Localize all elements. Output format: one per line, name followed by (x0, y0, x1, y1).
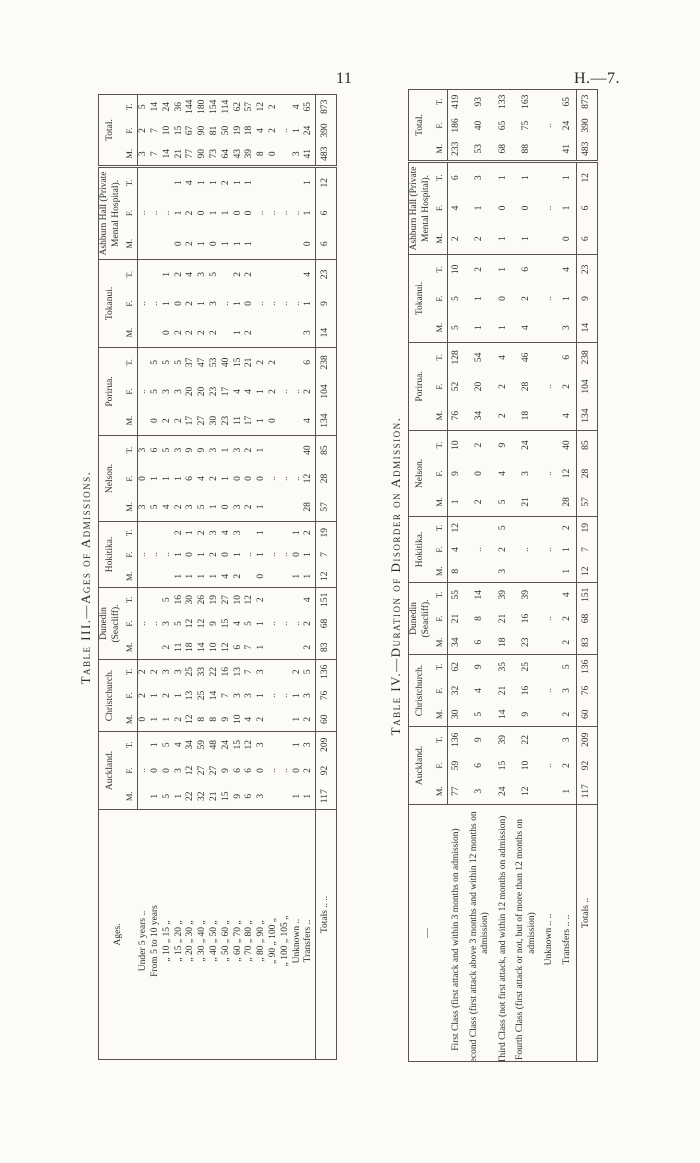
table-cell: 0 (221, 493, 233, 522)
table-cell: 2 (173, 318, 185, 347)
table-cell: 1 (303, 543, 315, 565)
table-cell: 65 (559, 89, 577, 113)
table-cell: 1 (173, 464, 185, 493)
table-cell: .. (541, 607, 559, 631)
table-cell (138, 166, 150, 197)
table-cell (280, 406, 292, 435)
table-cell: 3 (466, 779, 495, 805)
table-cell: 1 (303, 289, 315, 318)
table-cell: 1 (256, 406, 268, 435)
table-cell (541, 488, 559, 517)
table-cell: 2 (173, 493, 185, 522)
table-cell: 2 (150, 660, 162, 684)
table-cell: 2 (197, 318, 209, 347)
table-cell: 5 (495, 488, 513, 517)
table-cell (268, 318, 280, 347)
table-cell: 1 (291, 684, 303, 708)
table-row: Transfers .. ..1232352241122812404263140… (559, 89, 577, 1061)
table-cell (268, 660, 280, 684)
sub-header-mft: M. (122, 565, 138, 587)
table-cell: 16 (221, 660, 233, 684)
table-cell: 180 (197, 94, 209, 118)
row-label: Transfers .. (303, 810, 315, 1060)
row-label: Unknown .. (291, 810, 303, 1060)
table-cell: 1 (221, 228, 233, 259)
table-cell: 30 (209, 406, 221, 435)
row-label: Unknown .. .. (541, 805, 559, 1062)
table-cell: 24 (162, 94, 174, 118)
table-cell: 92 (577, 753, 598, 779)
table-cell: 4 (197, 464, 209, 493)
table-cell: 93 (466, 89, 495, 113)
table-cell: 2 (209, 464, 221, 493)
table-cell: 28 (577, 459, 598, 488)
table-cell: 0 (256, 565, 268, 587)
table-cell: 1 (162, 259, 174, 288)
table-cell: 0 (303, 228, 315, 259)
table-cell: 9 (466, 655, 495, 679)
table-cell (291, 347, 303, 376)
table-cell: 4 (512, 313, 541, 342)
table-cell: 1 (162, 289, 174, 318)
table-cell: 117 (577, 779, 598, 805)
table-cell: 1 (495, 254, 513, 283)
table-row: Transfers ..1232352241122812404263140114… (303, 94, 315, 1059)
table-cell: 1 (209, 565, 221, 587)
table-cell (291, 166, 303, 197)
table-cell: 28 (315, 464, 336, 493)
table-row: „ 40 „ 50 „21274881422109191231233023532… (209, 94, 221, 1059)
table-cell: 136 (577, 655, 598, 679)
sub-header-mft: T. (122, 347, 138, 376)
table-cell: 6 (448, 161, 466, 192)
table-cell: 9 (315, 289, 336, 318)
table-cell: 8 (197, 708, 209, 732)
table-cell (256, 166, 268, 197)
table-cell: 5 (162, 587, 174, 611)
table-cell (244, 565, 256, 587)
table-cell: 0 (185, 543, 197, 565)
table-cell: 21 (495, 607, 513, 631)
table-cell: 3 (559, 727, 577, 753)
table-cell: 12 (197, 612, 209, 636)
table-cell: 23 (577, 254, 598, 283)
table-cell: 104 (315, 377, 336, 406)
table-cell: 4 (303, 406, 315, 435)
table-cell: 34 (448, 631, 466, 655)
table-cell: 1 (150, 464, 162, 493)
table-cell: 3 (256, 732, 268, 758)
table-cell: 4 (495, 342, 513, 371)
sub-header-mft: F. (432, 459, 448, 488)
table-cell: 4 (162, 493, 174, 522)
sub-header-mft: M. (122, 493, 138, 522)
table-cell: .. (256, 289, 268, 318)
sub-header-mft: F. (122, 464, 138, 493)
table-cell (280, 259, 292, 288)
table-row: From 5 to 10 years101112....516055....77… (150, 94, 162, 1059)
table-cell: 55 (448, 582, 466, 606)
table-cell: 3 (303, 318, 315, 347)
table-cell: 1 (303, 565, 315, 587)
table-cell: 14 (209, 684, 221, 708)
table-cell: 1 (291, 521, 303, 543)
table-cell: 6 (315, 197, 336, 228)
table-cell (150, 587, 162, 611)
table-cell: 12 (244, 732, 256, 758)
table-cell: 1 (466, 192, 495, 223)
table-cell (256, 259, 268, 288)
table-cell: 4 (559, 582, 577, 606)
table-cell: 39 (512, 582, 541, 606)
table-cell: 25 (512, 655, 541, 679)
table-cell (280, 708, 292, 732)
table-cell: 10 (232, 708, 244, 732)
table-cell: .. (244, 543, 256, 565)
table-cell (541, 655, 559, 679)
table-cell: 50 (221, 118, 233, 142)
table-cell: 2 (221, 166, 233, 197)
table-cell (268, 784, 280, 810)
sub-header-mft: M. (122, 406, 138, 435)
table-cell: 21 (495, 679, 513, 703)
table-cell: 1 (221, 464, 233, 493)
table-cell: 1 (303, 166, 315, 197)
table-cell: 1 (173, 684, 185, 708)
sub-header-mft: F. (122, 377, 138, 406)
table-cell: 3 (197, 259, 209, 288)
table-cell (541, 703, 559, 727)
table-cell: 3 (209, 289, 221, 318)
table-cell (162, 228, 174, 259)
table-cell: 41 (559, 137, 577, 161)
table-cell: 8 (209, 708, 221, 732)
table-cell: .. (280, 758, 292, 784)
table-cell: 60 (577, 703, 598, 727)
table-cell: 2 (138, 118, 150, 142)
table-cell: 25 (185, 660, 197, 684)
table-row: Unknown .. .................... (541, 89, 559, 1061)
table-cell: 7 (150, 142, 162, 166)
table-cell: .. (280, 684, 292, 708)
table-cell: 0 (291, 758, 303, 784)
table-cell: 4 (303, 587, 315, 611)
table-cell: 3 (244, 684, 256, 708)
table-cell: 1 (244, 228, 256, 259)
table-cell: 2 (197, 521, 209, 543)
table-cell: 483 (315, 142, 336, 166)
sub-header-mft: T. (432, 430, 448, 459)
table-cell: 1 (197, 565, 209, 587)
table-cell: 76 (315, 684, 336, 708)
table-cell: 1 (256, 612, 268, 636)
sub-header-mft: T. (122, 521, 138, 543)
table-cell: 17 (244, 406, 256, 435)
table-cell: 2 (173, 259, 185, 288)
table-cell: 2 (185, 318, 197, 347)
table-cell: 10 (448, 430, 466, 459)
table-cell: 3 (209, 435, 221, 464)
table-cell: 4 (221, 521, 233, 543)
totals-row: Totals ..1179220960761368368151127195728… (577, 89, 598, 1061)
table-cell: 1 (448, 488, 466, 517)
table-cell: 43 (232, 142, 244, 166)
table-cell (280, 660, 292, 684)
table-cell: 0 (244, 197, 256, 228)
table-cell: 2 (466, 488, 495, 517)
table-row: „ 100 „ 105 „.................. (280, 94, 292, 1059)
table-row: „ 10 „ 15 „505123235..415235011..141024 (162, 94, 174, 1059)
table-cell: 90 (197, 142, 209, 166)
table-cell (291, 435, 303, 464)
table-cell: 390 (315, 118, 336, 142)
table-cell: 32 (448, 679, 466, 703)
table-cell: 22 (185, 784, 197, 810)
table-cell: 16 (512, 679, 541, 703)
table-cell: 5 (244, 612, 256, 636)
table-cell: 24 (303, 118, 315, 142)
table-cell: 4 (185, 166, 197, 197)
table-cell (150, 636, 162, 660)
table-cell: 0 (244, 464, 256, 493)
table-cell: 2 (303, 636, 315, 660)
table-cell: 1 (209, 166, 221, 197)
table-cell: 3 (559, 679, 577, 703)
table-cell: 3 (303, 732, 315, 758)
table-cell: 14 (577, 313, 598, 342)
sub-header-mft: M. (122, 784, 138, 810)
table-cell: 9 (466, 727, 495, 753)
table-cell: 40 (303, 435, 315, 464)
table-cell: 2 (162, 406, 174, 435)
table-cell (466, 560, 495, 582)
table-cell (138, 406, 150, 435)
table-cell: 0 (150, 406, 162, 435)
table-cell: 2 (559, 631, 577, 655)
table-cell: 33 (197, 660, 209, 684)
col-header: Dunedin (Seacliff). (99, 587, 123, 659)
table-cell: 1 (185, 521, 197, 543)
table-cell: 1 (291, 118, 303, 142)
table-cell: 27 (221, 587, 233, 611)
table-cell: 2 (303, 521, 315, 543)
stub-header: — (409, 805, 448, 1062)
table-cell: 2 (185, 228, 197, 259)
table-cell: 2 (256, 587, 268, 611)
table-cell: 2 (559, 372, 577, 401)
table-cell: 4 (559, 254, 577, 283)
table-cell (466, 516, 495, 538)
table-cell (268, 259, 280, 288)
table-cell: 12 (185, 758, 197, 784)
row-label: „ 80 „ 90 „ (256, 810, 268, 1060)
table-cell: 3 (232, 435, 244, 464)
table-cell: 5 (150, 377, 162, 406)
table-cell: 9 (221, 708, 233, 732)
table-cell: 5 (466, 703, 495, 727)
table-cell (541, 137, 559, 161)
table-cell: 2 (448, 223, 466, 254)
table-cell (138, 587, 150, 611)
table-cell (541, 223, 559, 254)
table-cell: 1 (197, 228, 209, 259)
table-cell (138, 318, 150, 347)
row-label: Transfers .. .. (559, 805, 577, 1062)
table-cell: 4 (256, 118, 268, 142)
sub-header-mft: F. (122, 684, 138, 708)
table-cell (541, 516, 559, 538)
table-cell: 18 (244, 118, 256, 142)
table-row: „ 15 „ 20 „13421311516112213235202011211… (173, 94, 185, 1059)
table-cell: 20 (197, 377, 209, 406)
table-cell (256, 228, 268, 259)
row-label: „ 100 „ 105 „ (280, 810, 292, 1060)
table-cell: 2 (512, 284, 541, 313)
table-cell (138, 636, 150, 660)
table-cell: 59 (197, 732, 209, 758)
table-cell: 7 (315, 543, 336, 565)
table-cell (138, 347, 150, 376)
table-cell: 1 (162, 464, 174, 493)
table-cell: 16 (173, 587, 185, 611)
table-cell: 1 (232, 228, 244, 259)
table-cell: .. (268, 289, 280, 318)
table-cell (150, 259, 162, 288)
row-label: „ 50 „ 60 „ (221, 810, 233, 1060)
table-cell: 134 (577, 401, 598, 430)
table-cell: 5 (197, 493, 209, 522)
table-cell: 873 (577, 89, 598, 113)
table-cell: 2 (244, 435, 256, 464)
table-cell: 151 (315, 587, 336, 611)
table-cell (280, 228, 292, 259)
table-cell: 32 (197, 784, 209, 810)
table-cell (541, 254, 559, 283)
table-cell: 1 (173, 543, 185, 565)
table-cell: 873 (315, 94, 336, 118)
table-row: „ 50 „ 60 „159249716121527404011231740..… (221, 94, 233, 1059)
table-cell: 21 (448, 607, 466, 631)
table-cell: 9 (197, 435, 209, 464)
table-cell: 2 (138, 684, 150, 708)
table-cell: 34 (185, 732, 197, 758)
table-iii-rotated-block: Table III.—Ages of Admissions. Ages.Auck… (78, 95, 365, 1060)
table-cell: 24 (512, 430, 541, 459)
table-cell: .. (138, 543, 150, 565)
sub-header-mft: M. (432, 313, 448, 342)
table-cell: 1 (256, 377, 268, 406)
table-cell: .. (280, 118, 292, 142)
table-cell: 10 (448, 254, 466, 283)
table-cell: 0 (559, 223, 577, 254)
table-cell: 6 (315, 228, 336, 259)
table-cell: 3 (232, 684, 244, 708)
sub-header-mft: F. (432, 192, 448, 223)
table-cell: 3 (512, 459, 541, 488)
table-cell: .. (268, 197, 280, 228)
table-cell: 5 (173, 612, 185, 636)
table-cell: 1 (150, 708, 162, 732)
table-cell: 0 (138, 464, 150, 493)
table-cell: 5 (162, 435, 174, 464)
table-cell: 1 (173, 565, 185, 587)
table-cell: .. (291, 197, 303, 228)
table-cell: 4 (221, 565, 233, 587)
table-cell: 2 (244, 259, 256, 288)
table-cell: 419 (448, 89, 466, 113)
table-cell: 24 (221, 732, 233, 758)
table-cell: .. (291, 464, 303, 493)
table-cell (280, 565, 292, 587)
table-cell: 27 (197, 758, 209, 784)
table-cell: 0 (256, 464, 268, 493)
table-cell: 114 (221, 94, 233, 118)
table-cell: 15 (221, 784, 233, 810)
table-cell: .. (162, 197, 174, 228)
sub-header-mft: F. (122, 758, 138, 784)
table-cell: 68 (315, 612, 336, 636)
col-header: Ashburn Hall (Private Mental Hospital). (409, 161, 433, 254)
table-cell: 1 (303, 784, 315, 810)
table-cell (268, 435, 280, 464)
table-cell: 1 (256, 636, 268, 660)
table-cell (280, 587, 292, 611)
table-cell: 5 (559, 655, 577, 679)
table-cell: 0 (268, 406, 280, 435)
table-cell: 15 (495, 753, 513, 779)
table-cell: 53 (466, 137, 495, 161)
table-cell: 53 (209, 347, 221, 376)
table-cell: 1 (495, 313, 513, 342)
table-cell: 12 (512, 779, 541, 805)
table-cell: 1 (559, 560, 577, 582)
table-cell: .. (541, 679, 559, 703)
table-cell: 11 (173, 636, 185, 660)
table-cell (280, 347, 292, 376)
sub-header-mft: F. (122, 118, 138, 142)
table-cell: 13 (185, 684, 197, 708)
table-cell (280, 435, 292, 464)
table-cell: 1 (512, 223, 541, 254)
table-cell: 12 (185, 612, 197, 636)
table-cell: 77 (185, 142, 197, 166)
table-cell: 7 (577, 538, 598, 560)
sub-header-mft: M. (122, 228, 138, 259)
sub-header-mft: T. (122, 94, 138, 118)
table-cell: 0 (209, 228, 221, 259)
table-cell: .. (162, 543, 174, 565)
table-cell: 2 (173, 521, 185, 543)
table-cell: 15 (232, 347, 244, 376)
table-cell: 3 (138, 435, 150, 464)
page-number: 11 (336, 70, 352, 88)
table-cell: .. (268, 543, 280, 565)
table-cell: 10 (162, 118, 174, 142)
table-cell: .. (280, 289, 292, 318)
table-cell: 16 (512, 607, 541, 631)
table-cell: 238 (577, 342, 598, 371)
table-cell: .. (512, 538, 541, 560)
sub-header-mft: T. (122, 587, 138, 611)
table-cell: 25 (197, 684, 209, 708)
sub-header-mft: F. (122, 612, 138, 636)
row-label: Fourth Class (first attack or not, but o… (512, 805, 541, 1062)
table-cell: 4 (448, 192, 466, 223)
table-cell: 6 (185, 464, 197, 493)
sub-header-mft: M. (432, 488, 448, 517)
table-cell: 1 (209, 197, 221, 228)
table-cell: 4 (303, 259, 315, 288)
